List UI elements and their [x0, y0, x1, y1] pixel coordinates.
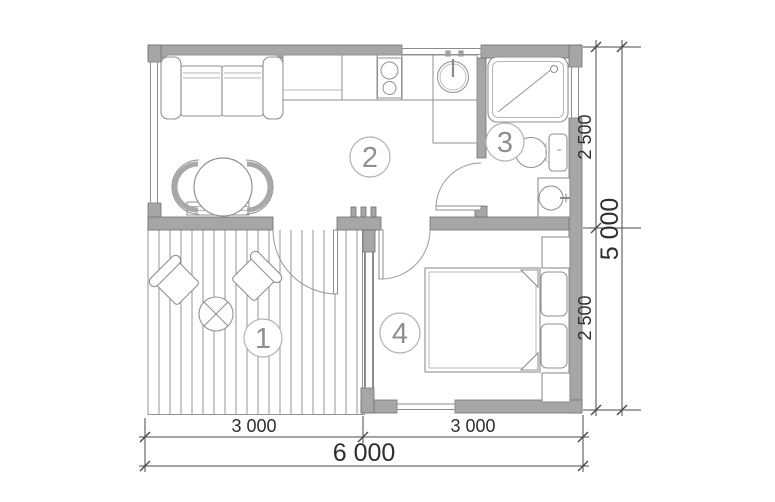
sofa-armrest — [161, 57, 181, 119]
stove-burner — [381, 62, 398, 79]
stove — [378, 58, 402, 98]
room-number: 1 — [255, 323, 271, 355]
nightstand-bottom — [542, 373, 570, 402]
wall-bedroom-sw-corner — [361, 388, 374, 413]
wall-middle-center — [337, 217, 381, 230]
pillow — [541, 324, 567, 368]
door-bathroom — [436, 163, 481, 210]
entry-post — [371, 207, 376, 217]
washbasin — [538, 178, 570, 217]
terrace-table — [199, 297, 233, 331]
sofa-armrest — [263, 57, 283, 119]
dim-label-bottom-total: 6 000 — [333, 439, 396, 467]
room-label-4: 4 — [380, 313, 420, 353]
shower-tray — [488, 57, 568, 122]
window-bedroom-south — [397, 400, 455, 413]
wall-left-upper — [148, 45, 161, 62]
entry-post — [361, 207, 366, 217]
floor-plan-drawing: 1 2 3 4 — [0, 0, 775, 502]
dim-label-right-bottom: 2 500 — [575, 295, 595, 340]
drain-icon — [551, 66, 558, 73]
dining-set — [172, 158, 273, 216]
room-number: 3 — [497, 127, 513, 159]
nightstand-top — [542, 237, 570, 268]
door-bedroom — [379, 230, 430, 279]
door-swing-arc — [381, 230, 430, 279]
wall-stem-terrace — [363, 230, 375, 252]
wall-top-right-segment — [481, 45, 582, 58]
dining-table — [194, 158, 252, 216]
room-label-2: 2 — [350, 137, 390, 177]
room-label-3: 3 — [486, 123, 524, 161]
wall-east-upper — [569, 45, 582, 67]
pillow — [541, 272, 567, 316]
window-bathroom-east — [569, 67, 582, 118]
entry-post — [351, 207, 356, 217]
window-living-west — [148, 62, 161, 203]
floor-plan-page: 1 2 3 4 — [0, 0, 775, 502]
bedroom-furniture — [425, 237, 570, 402]
door-swing-arc — [436, 163, 481, 208]
room-number: 4 — [392, 318, 408, 350]
wall-middle-left — [148, 217, 273, 230]
wall-east-main — [569, 118, 582, 413]
toilet-tank — [549, 134, 567, 171]
bed — [425, 268, 567, 372]
room-number: 2 — [362, 142, 378, 174]
room-label-1: 1 — [244, 319, 282, 357]
dim-label-bottom-right: 3 000 — [450, 416, 495, 436]
window-bedroom-west — [365, 252, 374, 388]
wall-middle-right — [430, 217, 569, 230]
sofa — [161, 55, 283, 119]
kitchen — [283, 51, 477, 143]
kitchen-counter-return — [433, 100, 477, 143]
wall-bathroom-west — [477, 58, 486, 158]
stove-burner — [383, 82, 396, 95]
dim-label-right-top: 2 500 — [575, 114, 595, 159]
basin-bowl — [539, 186, 563, 210]
dim-label-right-total: 5 000 — [596, 198, 624, 261]
dim-label-bottom-left: 3 000 — [231, 416, 276, 436]
